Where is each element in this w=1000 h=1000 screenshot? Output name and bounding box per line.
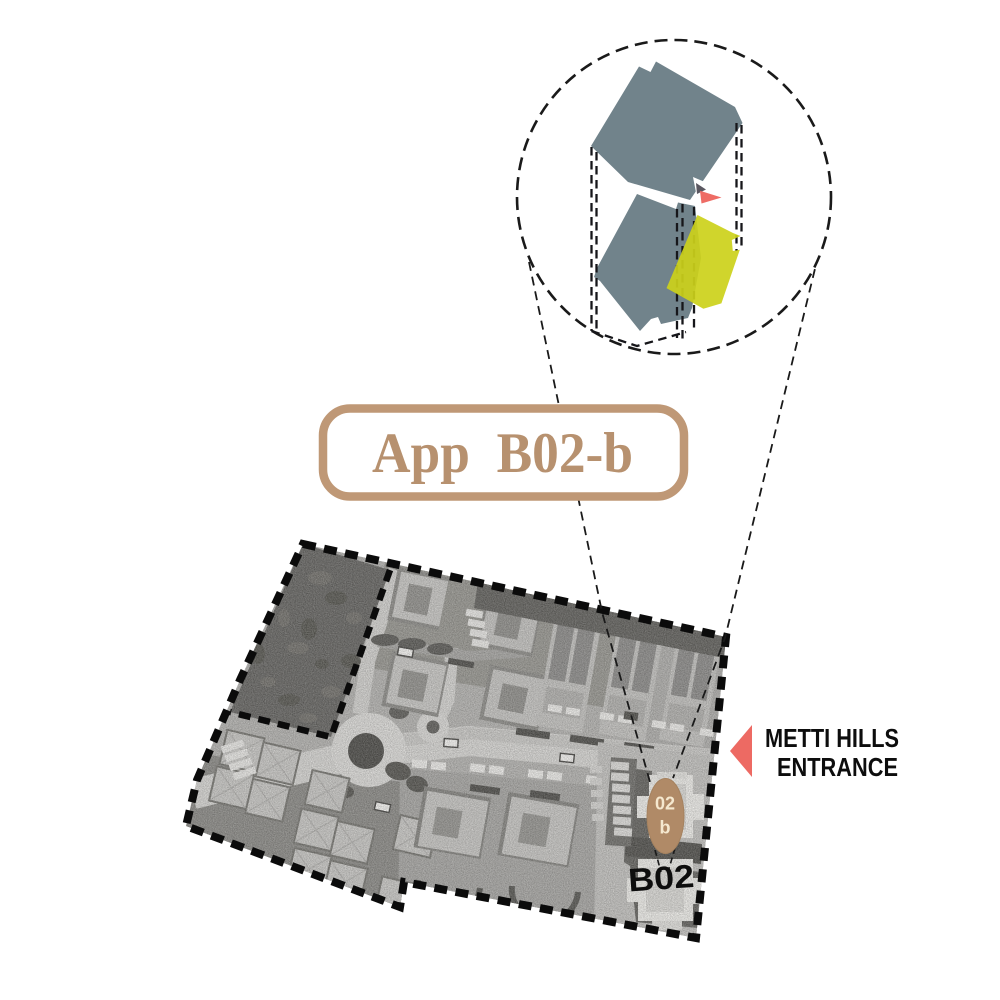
svg-text:b: b [660,818,671,838]
svg-text:App B02-b: App B02-b [372,422,633,485]
svg-text:METTI HILLS: METTI HILLS [765,723,899,753]
svg-text:02: 02 [655,794,675,814]
svg-text:B02: B02 [627,858,695,899]
svg-text:ENTRANCE: ENTRANCE [777,752,898,782]
